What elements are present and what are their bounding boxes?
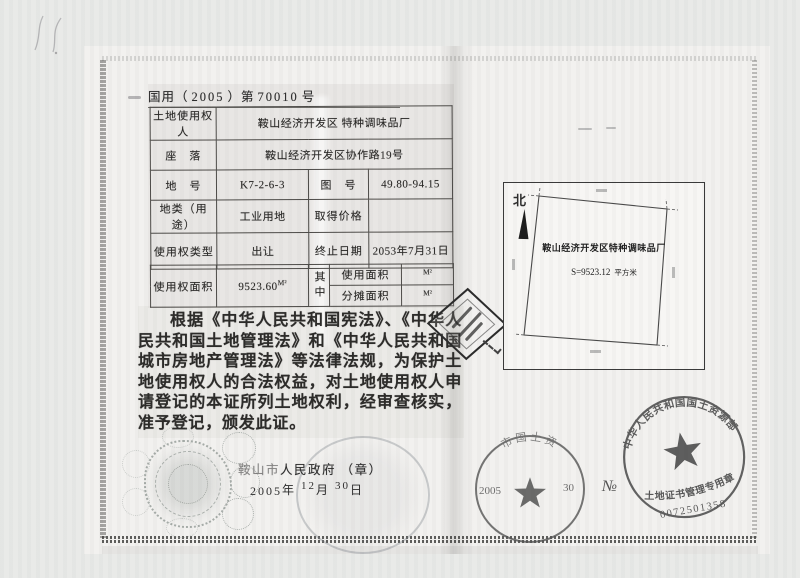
rosette-core [144,440,232,528]
north-label: 北 [513,190,526,209]
table-row: 地 号 K7-2-6-3 图 号 49.80-94.15 [150,169,452,201]
year-unit: 年 [282,483,296,497]
day-unit: 日 [350,483,364,497]
field-label-location: 座 落 [150,140,216,170]
rosette-petal [122,488,150,516]
serial-number: 70010 [255,90,302,104]
unit-label: M² [423,267,432,276]
parcel-area-label: S=9523.12平方米 [544,267,664,278]
field-label-land-use: 地类（用途） [151,200,217,233]
local-land-bureau-seal: 市国土资 2005 30 [470,430,590,550]
field-value-acquire-price [369,199,453,232]
month-unit: 月 [316,483,330,497]
north-arrow-icon [518,209,529,239]
issue-date-day: 30 [335,480,350,492]
diamond-registration-stamp [424,290,512,366]
seal-serial-number: 0072501358 [659,498,727,521]
national-land-certificate-seal: 中华人民共和国国土资源部 土地证书管理专用章 0072501358 [599,380,771,544]
table-row: 土地使用权人 鞍山经济开发区 特种调味品厂 [150,106,452,141]
field-label-acquire-price: 取得价格 [309,199,369,232]
legal-declaration-text: 根据《中华人民共和国宪法》、《中华人民共和国土地管理法》和《中华人民共和国城市房… [138,311,462,434]
issue-date-month: 12 [301,480,316,492]
field-value-plot-number: K7-2-6-3 [216,169,308,199]
issue-date-year: 2005 [250,484,282,498]
field-value-map-number: 49.80-94.15 [368,169,452,199]
seal-star-icon [661,429,705,471]
field-label-map-number: 图 号 [308,169,368,199]
field-label-land-user: 土地使用权人 [150,107,216,140]
parcel-owner-name: 鞍山经济开发区特种调味品厂 [539,241,669,254]
seal-arc-text: 市国土资 [499,430,561,451]
area-unit: 平方米 [614,268,637,277]
issue-date-line: 2005年 12月 30日 [250,481,364,498]
table-row: 座 落 鞍山经济开发区协作路19号 [150,139,452,171]
area-number: 9523.60 [238,281,277,293]
seal-note: （章） [341,463,383,477]
doc-type-label: 国用（ [148,90,189,104]
doc-type-suffix: 号 [302,90,316,104]
rosette-petal [122,450,150,478]
authority-name: 人民政府 [280,463,336,477]
guilloche-rosette-ornament [120,430,254,538]
issuing-authority-line: 鞍山市人民政府 （章） [238,459,383,478]
field-value-location: 鞍山经济开发区协作路19号 [216,139,452,170]
seal-right-number: 30 [563,482,575,494]
table-row: 使用权面积 9523.60M² 其中 使用面积 M² [150,264,453,287]
field-label-plot-number: 地 号 [150,170,216,200]
seal-left-number: 2005 [479,485,502,497]
scanned-land-use-certificate: 国用（2005）第70010号 土地使用权人 鞍山经济开发区 特种调味品厂 座 … [0,0,800,578]
field-value-land-user: 鞍山经济开发区 特种调味品厂 [216,106,452,140]
land-area-table: 使用权面积 9523.60M² 其中 使用面积 M² 分摊面积 M² [150,263,454,308]
pencil-squiggle-mark [26,6,72,56]
area-unit: M² [278,278,287,287]
area-value: S=9523.12 [571,267,610,277]
svg-text:市国土资: 市国土资 [499,430,561,451]
field-unit-use-area: M² [401,264,453,285]
rosette-petal [162,426,194,448]
land-info-table: 土地使用权人 鞍山经济开发区 特种调味品厂 座 落 鞍山经济开发区协作路19号 … [150,105,454,270]
field-label-shared-area: 分摊面积 [329,285,401,306]
rosette-petal [222,498,254,530]
field-label-of-which: 其中 [308,264,329,306]
faint-stamp-mark [128,96,141,99]
field-label-use-area: 使用面积 [329,264,401,285]
faint-text-smudge [606,127,616,129]
issue-year: 2005 [189,90,228,104]
field-value-right-area: 9523.60M² [216,264,308,306]
authority-city: 鞍山市 [238,463,280,477]
field-value-land-use: 工业用地 [217,199,309,232]
doc-type-mid: ）第 [228,90,255,104]
parcel-map-frame: 北 鞍山经济开发区特种调味品厂 S=9523.12平方米 [503,182,705,370]
table-row: 地类（用途） 工业用地 取得价格 [151,199,453,234]
rosette-petal [166,518,198,538]
faint-text-smudge [578,128,592,130]
seal-star-icon [514,477,546,507]
field-label-right-area: 使用权面积 [150,265,216,307]
